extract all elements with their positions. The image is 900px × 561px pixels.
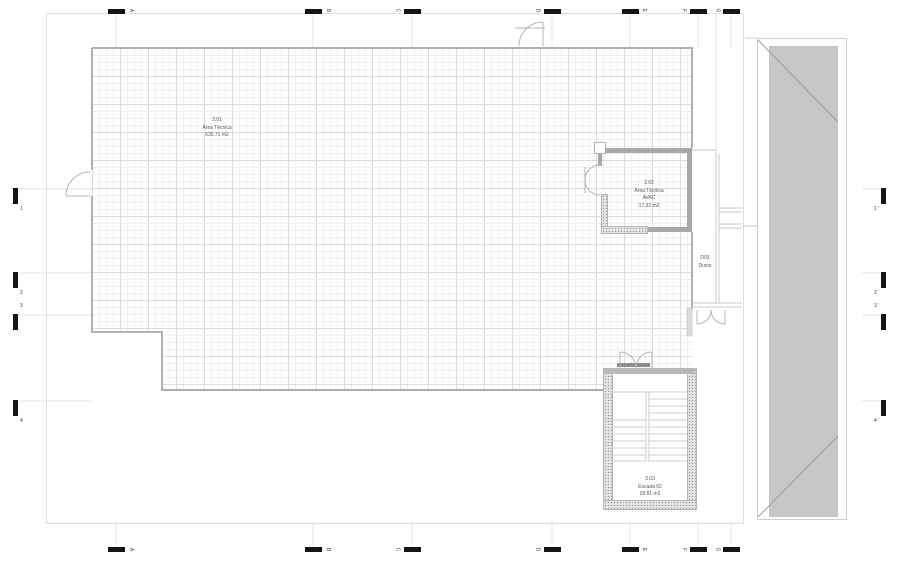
grid-label-top-b: B bbox=[325, 9, 330, 12]
grid-label-bottom-f: F bbox=[681, 548, 686, 551]
wall-segment-speckled bbox=[687, 308, 692, 336]
grid-marker-bar-bottom-d bbox=[544, 547, 561, 552]
grid-marker-bar-left-1 bbox=[13, 188, 18, 204]
grid-label-right-1: 1 ' bbox=[874, 207, 879, 212]
grid-label-left-3: 3 bbox=[20, 304, 23, 309]
room-area: 17.32 m2 bbox=[634, 203, 663, 211]
grid-reference-lines bbox=[19, 14, 881, 546]
roof-slope-lines bbox=[758, 40, 838, 517]
grid-marker-bar-top-g bbox=[723, 9, 740, 14]
grid-label-left-2: 2 bbox=[20, 291, 23, 296]
room-name: Ducto bbox=[698, 263, 711, 271]
door-left-exterior bbox=[66, 172, 90, 196]
door-top-exterior bbox=[515, 22, 545, 46]
room-label-3-02: 3.02 Área Técnica AVAC 17.32 m2 bbox=[634, 180, 663, 210]
grid-marker-bar-top-e bbox=[622, 9, 639, 14]
door-corridor-double bbox=[697, 310, 725, 324]
grid-label-right-2: 2 ' bbox=[874, 291, 879, 296]
grid-marker-bar-bottom-a bbox=[108, 547, 125, 552]
door-room-3-02-double bbox=[585, 165, 600, 195]
grid-label-right-3: 3 ' bbox=[874, 304, 879, 309]
grid-marker-bar-bottom-e bbox=[622, 547, 639, 552]
grid-label-left-4: 4 bbox=[20, 419, 23, 424]
room-number: D03 bbox=[698, 255, 711, 263]
grid-label-top-a: A bbox=[128, 9, 133, 12]
grid-marker-bar-bottom-f bbox=[690, 547, 707, 552]
room-name: Escada 02 bbox=[638, 484, 662, 492]
floor-plan-canvas: 3.01 Área Técnica 535.71 m2 3.02 Área Té… bbox=[0, 0, 900, 561]
room-area: 28.81 m2 bbox=[638, 491, 662, 499]
grid-marker-bar-left-4 bbox=[13, 400, 18, 416]
stair-treads bbox=[611, 392, 687, 462]
grid-marker-bar-top-f bbox=[690, 9, 707, 14]
column-marker bbox=[594, 142, 606, 154]
grid-marker-bar-left-3 bbox=[13, 314, 18, 330]
grid-label-bottom-g: G bbox=[714, 548, 719, 552]
grid-marker-bar-right-1 bbox=[881, 188, 886, 204]
grid-marker-bar-top-a bbox=[108, 9, 125, 14]
grid-marker-bar-right-4 bbox=[881, 400, 886, 416]
room-label-duct: D03 Ducto bbox=[698, 255, 711, 270]
room-name: Área Técnica bbox=[202, 125, 231, 133]
grid-marker-bar-left-2 bbox=[13, 272, 18, 288]
grid-marker-bar-bottom-c bbox=[404, 547, 421, 552]
grid-label-bottom-b: B bbox=[325, 548, 330, 551]
grid-label-top-c: C bbox=[394, 9, 399, 13]
grid-label-bottom-e: E bbox=[641, 548, 646, 551]
room-name: Área Técnica bbox=[634, 188, 663, 196]
grid-label-top-e: E bbox=[641, 9, 646, 12]
room-number: 3.01 bbox=[202, 117, 231, 125]
grid-marker-bar-top-d bbox=[544, 9, 561, 14]
grid-label-top-g: G bbox=[714, 9, 719, 13]
grid-marker-bar-right-2 bbox=[881, 272, 886, 288]
grid-label-top-f: F bbox=[681, 9, 686, 12]
grid-marker-bar-right-3 bbox=[881, 314, 886, 330]
grid-label-bottom-c: C bbox=[394, 548, 399, 552]
plan-linework bbox=[0, 0, 900, 561]
room-label-stair: 3.03 Escada 02 28.81 m2 bbox=[638, 476, 662, 499]
grid-label-top-d: D bbox=[534, 9, 539, 13]
room-number: 3.02 bbox=[634, 180, 663, 188]
grid-marker-bar-top-b bbox=[305, 9, 322, 14]
room-number: 3.03 bbox=[638, 476, 662, 484]
walls-outline bbox=[92, 48, 692, 390]
door-swings bbox=[66, 22, 725, 368]
grid-marker-bar-top-c bbox=[404, 9, 421, 14]
grid-label-bottom-a: A bbox=[128, 548, 133, 551]
grid-marker-bar-bottom-g bbox=[723, 547, 740, 552]
grid-label-left-1: 1 bbox=[20, 207, 23, 212]
grid-marker-bar-bottom-b bbox=[305, 547, 322, 552]
room-subname: AVAC bbox=[634, 195, 663, 203]
grid-label-bottom-d: D bbox=[534, 548, 539, 552]
room-area: 535.71 m2 bbox=[202, 132, 231, 140]
grid-label-right-4: 4 ' bbox=[874, 419, 879, 424]
door-stair-double bbox=[620, 352, 652, 368]
room-label-3-01: 3.01 Área Técnica 535.71 m2 bbox=[202, 117, 231, 140]
